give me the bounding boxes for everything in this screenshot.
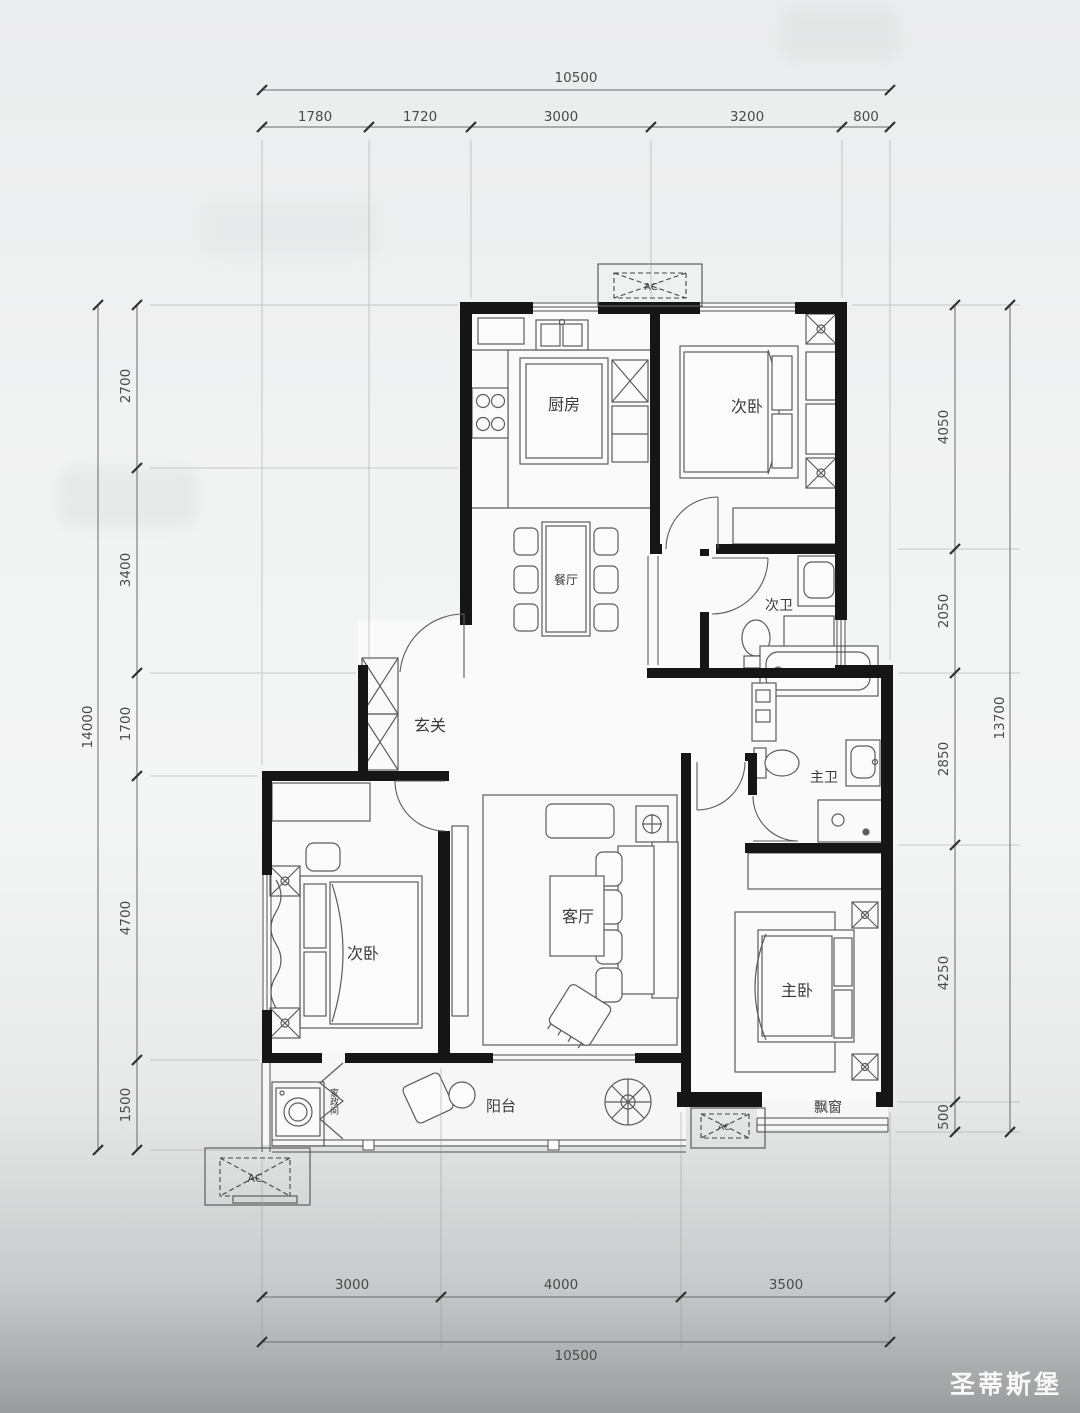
dim-left-seg: 1500: [118, 1088, 134, 1122]
dim-left-seg: 1700: [118, 707, 134, 741]
dim-top-seg: 800: [853, 109, 879, 125]
washing-machine: [272, 1082, 324, 1146]
dim-bottom: 3000 4000 3500 10500: [257, 1277, 895, 1364]
pillow: [834, 990, 852, 1038]
dim-top-seg: 1780: [298, 109, 332, 125]
bedroom-master-label: 主卧: [781, 981, 813, 1000]
dim-right-seg: 4250: [936, 956, 952, 990]
plant: [605, 1079, 651, 1125]
ac-label: AC: [247, 1172, 262, 1185]
kitchen-label: 厨房: [548, 395, 580, 414]
ac-platform-bottom-center: AC: [691, 1108, 765, 1148]
pillow: [304, 884, 326, 948]
dim-left-seg: 2700: [118, 369, 134, 403]
dim-right-seg: 2850: [936, 742, 952, 776]
pillow: [834, 938, 852, 986]
ac-platform-top: AC: [598, 264, 702, 306]
foyer-label: 玄关: [414, 716, 446, 735]
dim-right-seg: 500: [936, 1104, 952, 1130]
dim-bottom-seg: 3000: [335, 1277, 369, 1293]
bay-window-label: 飘窗: [814, 1099, 842, 1116]
ac-label: AC: [718, 1123, 730, 1133]
bedroom-left-label: 次卧: [347, 944, 379, 963]
dining-label: 餐厅: [554, 572, 578, 587]
tv-console: [452, 826, 468, 1016]
dim-right-total: 13700: [992, 697, 1008, 740]
dim-bottom-total: 10500: [555, 1348, 598, 1364]
dim-left-seg: 4700: [118, 901, 134, 935]
media-table: [546, 804, 614, 838]
dim-left-seg: 3400: [118, 553, 134, 587]
dim-top: 10500 1780 1720 3000 3200 800: [257, 70, 895, 132]
brand-watermark: 圣蒂斯堡: [950, 1365, 1062, 1401]
dim-bottom-seg: 3500: [769, 1277, 803, 1293]
bath-master-label: 主卫: [810, 770, 838, 786]
wardrobe-unit: [806, 352, 838, 400]
pillow: [772, 414, 792, 468]
stove: [472, 388, 508, 438]
sofa: [596, 842, 678, 1002]
floorplan-image: AC AC AC 厨房 次卧 餐厅 次卫 玄关 客厅 次卧 主卫 主卧 阳台: [0, 0, 1080, 1413]
master-toilet: [754, 748, 799, 778]
ac-platform-bottom-left: AC: [205, 1148, 310, 1205]
dim-bottom-seg: 4000: [544, 1277, 578, 1293]
master-sink: [846, 740, 880, 786]
dim-top-total: 10500: [555, 70, 598, 86]
kitchen-corner-sink: [478, 318, 524, 344]
living-label: 客厅: [562, 907, 594, 926]
dim-right: 4050 2050 2850 4250 500 13700: [936, 300, 1015, 1137]
floor-plan-svg: AC AC AC 厨房 次卧 餐厅 次卫 玄关 客厅 次卧 主卫 主卧 阳台: [0, 0, 1080, 1413]
dim-right-seg: 2050: [936, 594, 952, 628]
dim-left-total: 14000: [80, 706, 96, 749]
dim-top-seg: 3000: [544, 109, 578, 125]
dim-top-seg: 3200: [730, 109, 764, 125]
dim-top-seg: 1720: [403, 109, 437, 125]
stool: [306, 843, 340, 871]
pillow: [304, 952, 326, 1016]
bath-second-label: 次卫: [765, 598, 793, 614]
balcony-label: 阳台: [486, 1097, 516, 1115]
wardrobe-unit: [806, 404, 838, 454]
dim-left: 14000 2700 3400 1700 4700 1500: [80, 300, 142, 1155]
laundry-label: 家政间: [328, 1087, 339, 1116]
dim-right-seg: 4050: [936, 410, 952, 444]
bedroom-top-label: 次卧: [731, 397, 763, 416]
pillow: [772, 356, 792, 410]
side-table: [449, 1082, 475, 1108]
